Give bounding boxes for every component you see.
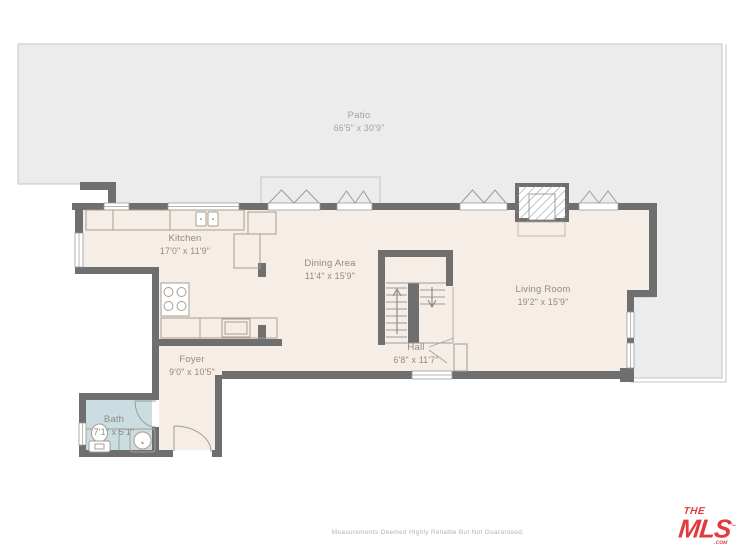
stove: [161, 283, 189, 316]
mls-logo: THE MLS™ .COM: [677, 507, 737, 546]
floorplan-image: Patio 66'5" x 30'9" Kitchen 17'0" x 11'9…: [0, 0, 747, 560]
room-name: Dining Area: [270, 258, 390, 270]
window: [104, 203, 129, 210]
hearth: [518, 222, 565, 236]
disclaimer-text: Measurements Deemed Highly Reliable But …: [332, 529, 524, 536]
window: [168, 203, 239, 210]
room-label-patio: Patio 66'5" x 30'9": [299, 110, 419, 134]
room-label-hall: Hall 6'8" x 11'7": [356, 342, 476, 366]
room-label-kitchen: Kitchen 17'0" x 11'9": [125, 233, 245, 257]
window: [75, 233, 83, 267]
room-dimensions: 66'5" x 30'9": [299, 122, 419, 134]
room-label-bath: Bath 7'1" x 5'1": [54, 414, 174, 438]
room-dimensions: 17'0" x 11'9": [125, 245, 245, 257]
window: [627, 343, 634, 368]
room-dimensions: 9'0" x 10'5": [132, 366, 252, 378]
room-dimensions: 19'2" x 15'9": [483, 296, 603, 308]
room-name: Foyer: [132, 354, 252, 366]
room-dimensions: 6'8" x 11'7": [356, 354, 476, 366]
room-name: Living Room: [483, 284, 603, 296]
room-name: Kitchen: [125, 233, 245, 245]
room-dimensions: 7'1" x 5'1": [54, 426, 174, 438]
room-name: Bath: [54, 414, 174, 426]
room-name: Patio: [299, 110, 419, 122]
room-label-living: Living Room 19'2" x 15'9": [483, 284, 603, 308]
window: [412, 371, 452, 379]
window: [627, 312, 634, 338]
room-label-foyer: Foyer 9'0" x 10'5": [132, 354, 252, 378]
room-name: Hall: [356, 342, 476, 354]
mls-logo-mls: MLS™: [678, 517, 736, 540]
room-dimensions: 11'4" x 15'9": [270, 270, 390, 282]
trademark-symbol: ™: [731, 524, 736, 530]
room-label-dining: Dining Area 11'4" x 15'9": [270, 258, 390, 282]
fireplace: [517, 185, 567, 236]
